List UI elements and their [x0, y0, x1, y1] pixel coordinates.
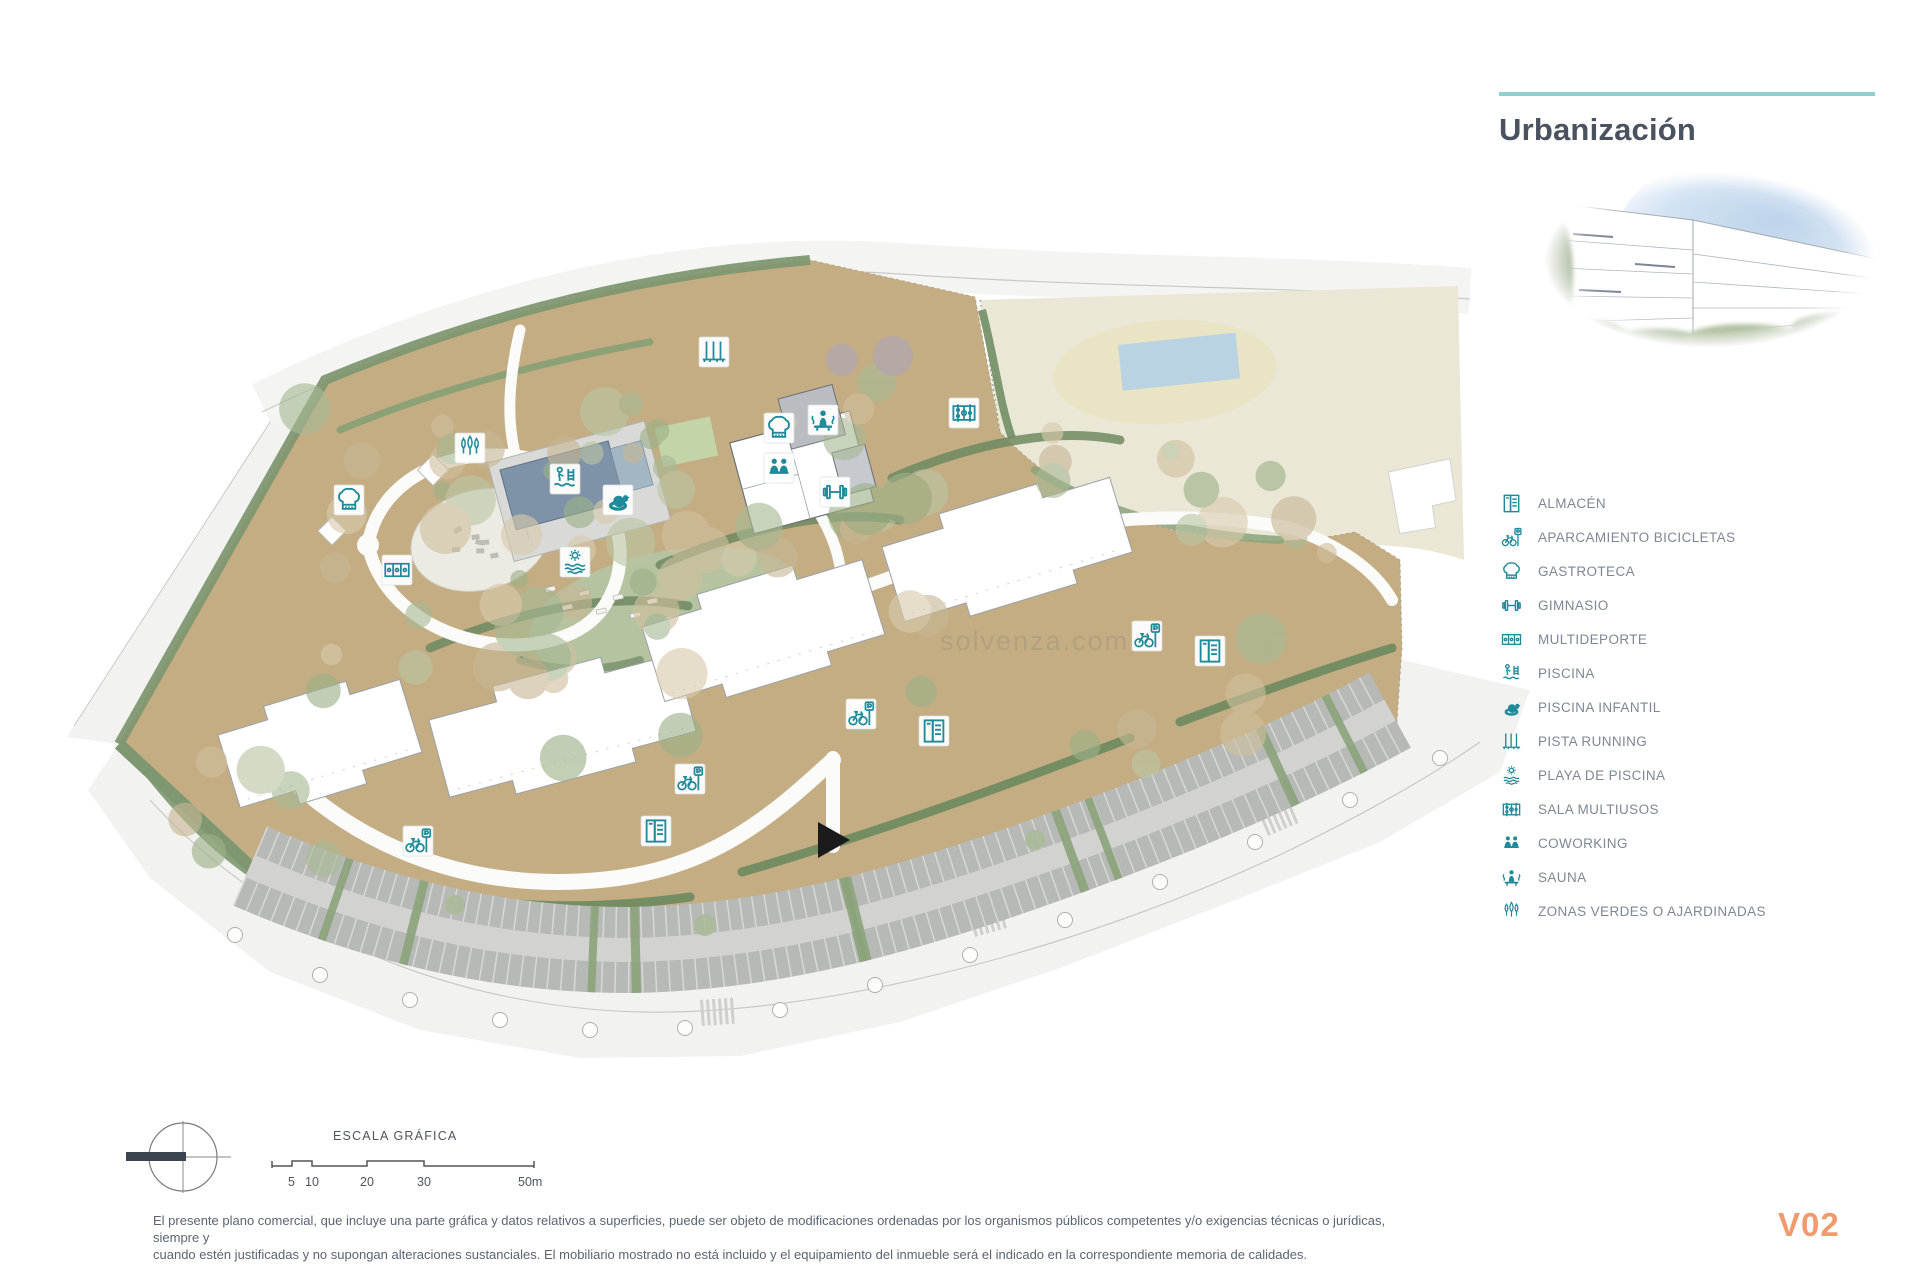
- plan-icon-aparcamiento-bicicletas: [675, 764, 705, 794]
- gastroteca-icon: [1500, 560, 1523, 583]
- plan-icon-piscina-infantil: [603, 485, 633, 515]
- plan-icon-gastroteca: [764, 413, 794, 443]
- disclaimer-line: cuando estén justificadas y no supongan …: [153, 1246, 1433, 1263]
- building-render: [1543, 156, 1915, 368]
- plan-icon-almacen: [641, 816, 671, 846]
- gimnasio-icon: [1500, 594, 1523, 617]
- watermark: solvenza.com: [940, 626, 1129, 656]
- legend-item-piscina-infantil: PISCINA INFANTIL: [1500, 696, 1920, 719]
- legend-label: PISTA RUNNING: [1538, 734, 1647, 749]
- sauna-icon: [1500, 866, 1523, 889]
- svg-text:ESCALA GRÁFICA: ESCALA GRÁFICA: [333, 1128, 457, 1143]
- plan-icon-coworking: [764, 453, 794, 483]
- plan-icon-playa-de-piscina: [560, 547, 590, 577]
- legend-label: PISCINA INFANTIL: [1538, 700, 1661, 715]
- legend-label: COWORKING: [1538, 836, 1628, 851]
- legend-label: PISCINA: [1538, 666, 1595, 681]
- legend-item-pista-running: PISTA RUNNING: [1500, 730, 1920, 753]
- scale-bar: ESCALA GRÁFICA 5 10 20 30 50m: [272, 1128, 542, 1189]
- plan-icon-gastroteca-kiosk: [334, 485, 364, 515]
- legend-label: ZONAS VERDES O AJARDINADAS: [1538, 904, 1766, 919]
- legend-item-multideporte: MULTIDEPORTE: [1500, 628, 1920, 651]
- legend-item-sauna: SAUNA: [1500, 866, 1920, 889]
- legend-label: ALMACÉN: [1538, 496, 1606, 511]
- disclaimer: El presente plano comercial, que incluye…: [153, 1212, 1433, 1263]
- svg-text:20: 20: [360, 1175, 374, 1189]
- legend-item-coworking: COWORKING: [1500, 832, 1920, 855]
- plan-icon-zonas-verdes: [455, 433, 485, 463]
- multideporte-icon: [1500, 628, 1523, 651]
- legend-item-zonas-verdes: ZONAS VERDES O AJARDINADAS: [1500, 900, 1920, 923]
- sala-multiusos-icon: [1500, 798, 1523, 821]
- plan-icon-almacen: [1195, 636, 1225, 666]
- playa-de-piscina-icon: [1500, 764, 1523, 787]
- svg-text:50m: 50m: [518, 1175, 542, 1189]
- plan-icon-pista-running: [699, 337, 729, 367]
- page: solvenza.com ESCALA GRÁFICA 5 10 20 30 5…: [0, 0, 1920, 1280]
- plan-icon-aparcamiento-bicicletas: [846, 699, 876, 729]
- svg-text:5: 5: [288, 1175, 295, 1189]
- legend-item-almacen: ALMACÉN: [1500, 492, 1920, 515]
- legend-label: PLAYA DE PISCINA: [1538, 768, 1665, 783]
- legend-label: GIMNASIO: [1538, 598, 1609, 613]
- version-badge: V02: [1778, 1206, 1840, 1244]
- legend-item-gastroteca: GASTROTECA: [1500, 560, 1920, 583]
- plan-icon-sauna: [808, 405, 838, 435]
- svg-text:30: 30: [417, 1175, 431, 1189]
- legend-label: APARCAMIENTO BICICLETAS: [1538, 530, 1736, 545]
- legend-item-sala-multiusos: SALA MULTIUSOS: [1500, 798, 1920, 821]
- legend-item-gimnasio: GIMNASIO: [1500, 594, 1920, 617]
- legend-item-aparcamiento-bicicletas: APARCAMIENTO BICICLETAS: [1500, 526, 1920, 549]
- plan-icon-piscina: [550, 464, 580, 494]
- plan-icon-multideporte: [382, 555, 412, 585]
- disclaimer-line: El presente plano comercial, que incluye…: [153, 1212, 1433, 1246]
- plan-icon-sala-multiusos: [949, 398, 979, 428]
- coworking-icon: [1500, 832, 1523, 855]
- legend-label: SAUNA: [1538, 870, 1587, 885]
- legend-label: SALA MULTIUSOS: [1538, 802, 1659, 817]
- zonas-verdes-icon: [1500, 900, 1523, 923]
- plan-icon-aparcamiento-bicicletas: [403, 826, 433, 856]
- almacen-icon: [1500, 492, 1523, 515]
- plan-icon-gimnasio: [820, 477, 850, 507]
- aparcamiento-bicicletas-icon: [1500, 526, 1523, 549]
- title-rule: [1499, 92, 1875, 96]
- legend: ALMACÉN APARCAMIENTO BICICLETAS GASTROTE…: [1500, 492, 1920, 934]
- pista-running-icon: [1500, 730, 1523, 753]
- plan-icon-almacen: [919, 716, 949, 746]
- piscina-icon: [1500, 662, 1523, 685]
- page-title: Urbanización: [1499, 112, 1696, 148]
- legend-label: GASTROTECA: [1538, 564, 1635, 579]
- north-compass: [126, 1121, 231, 1193]
- piscina-infantil-icon: [1500, 696, 1523, 719]
- plan-icon-aparcamiento-bicicletas: [1132, 621, 1162, 651]
- legend-item-playa-de-piscina: PLAYA DE PISCINA: [1500, 764, 1920, 787]
- svg-text:10: 10: [305, 1175, 319, 1189]
- legend-item-piscina: PISCINA: [1500, 662, 1920, 685]
- legend-label: MULTIDEPORTE: [1538, 632, 1647, 647]
